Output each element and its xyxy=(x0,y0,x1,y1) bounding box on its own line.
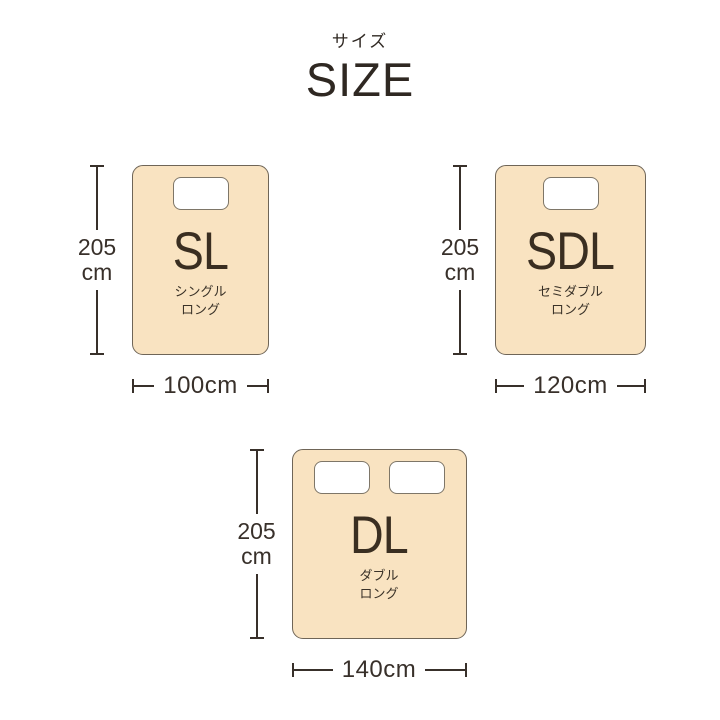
height-value: 205 xyxy=(237,519,275,544)
size-name-line2: ロング xyxy=(174,301,226,319)
mattress-sl: SL シングル ロング xyxy=(132,165,269,355)
dim-cap-bottom xyxy=(453,353,467,355)
height-dimension-sl: 205 cm xyxy=(74,165,120,355)
dim-line-horizontal xyxy=(497,385,524,387)
pillow-row xyxy=(173,177,229,210)
pillow-row xyxy=(314,461,445,494)
mattress-sdl: SDL セミダブル ロング xyxy=(495,165,646,355)
mattress-column-sl: SL シングル ロング 100cm xyxy=(132,165,269,393)
page-header: サイズ SIZE xyxy=(0,0,720,103)
height-dimension-dl: 205 cm xyxy=(234,449,280,639)
dim-line-vertical xyxy=(256,574,258,637)
pillow-icon xyxy=(543,177,599,210)
dim-line-vertical xyxy=(96,167,98,230)
dim-cap-right xyxy=(644,379,646,393)
dim-cap-right xyxy=(465,663,467,677)
size-figure-sl: 205 cm SL シングル ロング xyxy=(74,165,269,393)
dim-line-vertical xyxy=(459,167,461,230)
dim-cap-bottom xyxy=(90,353,104,355)
height-unit: cm xyxy=(78,260,116,285)
width-dimension-sl: 100cm xyxy=(132,379,269,393)
pillow-icon xyxy=(173,177,229,210)
dim-line-vertical xyxy=(256,451,258,514)
dim-line-vertical xyxy=(96,290,98,353)
size-name-line1: シングル xyxy=(174,283,226,301)
size-name-jp-dl: ダブル ロング xyxy=(359,567,398,602)
dim-line-horizontal xyxy=(294,669,333,671)
size-figure-sdl: 205 cm SDL セミダブル ロング xyxy=(437,165,646,393)
size-row-bottom: 205 cm DL ダブル ロング xyxy=(0,449,720,677)
size-name-line2: ロング xyxy=(538,301,603,319)
width-label-sl: 100cm xyxy=(154,372,247,400)
height-dimension-sdl: 205 cm xyxy=(437,165,483,355)
size-row-top: 205 cm SL シングル ロング xyxy=(0,165,720,393)
height-value: 205 xyxy=(78,235,116,260)
size-abbr-sl: SL xyxy=(173,225,228,278)
dim-cap-right xyxy=(267,379,269,393)
height-unit: cm xyxy=(441,260,479,285)
mattress-dl: DL ダブル ロング xyxy=(292,449,467,639)
size-name-line1: セミダブル xyxy=(538,283,603,301)
dim-line-vertical xyxy=(459,290,461,353)
mattress-column-dl: DL ダブル ロング 140cm xyxy=(292,449,467,677)
size-abbr-dl: DL xyxy=(350,509,408,562)
height-label-sdl: 205 cm xyxy=(441,230,479,291)
dim-line-horizontal xyxy=(425,669,464,671)
width-dimension-sdl: 120cm xyxy=(495,379,646,393)
height-unit: cm xyxy=(237,544,275,569)
mattress-column-sdl: SDL セミダブル ロング 120cm xyxy=(495,165,646,393)
size-abbr-sdl: SDL xyxy=(526,225,614,278)
dim-line-horizontal xyxy=(617,385,644,387)
size-name-line2: ロング xyxy=(359,585,398,603)
width-label-sdl: 120cm xyxy=(524,372,617,400)
size-name-jp-sdl: セミダブル ロング xyxy=(538,283,603,318)
size-figure-dl: 205 cm DL ダブル ロング xyxy=(234,449,467,677)
height-label-dl: 205 cm xyxy=(237,514,275,575)
size-chart-page: サイズ SIZE 205 cm SL xyxy=(0,0,720,720)
page-subtitle-jp: サイズ xyxy=(0,32,720,52)
dim-cap-bottom xyxy=(250,637,264,639)
width-dimension-dl: 140cm xyxy=(292,663,467,677)
pillow-icon xyxy=(314,461,370,494)
height-value: 205 xyxy=(441,235,479,260)
size-name-jp-sl: シングル ロング xyxy=(174,283,226,318)
pillow-row xyxy=(543,177,599,210)
size-name-line1: ダブル xyxy=(359,567,398,585)
page-title: SIZE xyxy=(0,56,720,103)
dim-line-horizontal xyxy=(134,385,154,387)
width-label-dl: 140cm xyxy=(333,656,426,684)
height-label-sl: 205 cm xyxy=(78,230,116,291)
dim-line-horizontal xyxy=(247,385,267,387)
pillow-icon xyxy=(389,461,445,494)
